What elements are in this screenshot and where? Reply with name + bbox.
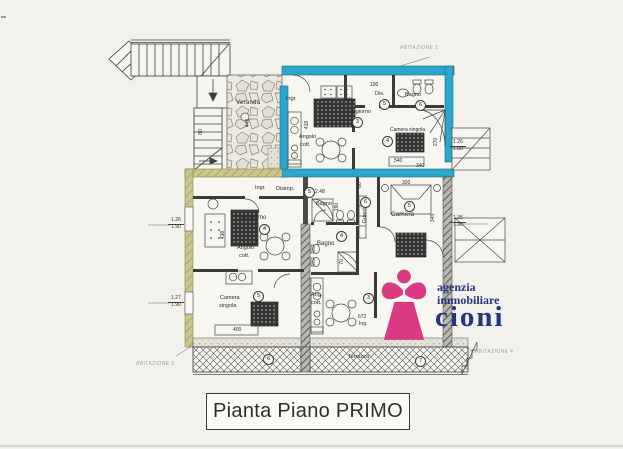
terraces [193, 347, 468, 375]
apt4-bagno-label: Bagno [317, 241, 334, 247]
apt5-bagno-label: Bagno [405, 92, 421, 98]
apt3-bagno-label: Bagno [316, 201, 332, 207]
room-number-badge: 3 [363, 293, 374, 304]
apt3-dim-248: 2.48 [315, 189, 325, 195]
apt5-window-dim: 1.26 1.80 [450, 140, 466, 152]
apt4-dim-320: 320 [402, 180, 410, 186]
apt4-angolo-label2: cott. [311, 300, 321, 306]
apt5-dim-540: 540 [394, 158, 402, 164]
apt3-dim-400: 400 [233, 327, 241, 333]
apt4-camera-label: Camera [391, 211, 414, 218]
apt5-dim-100: 100 [370, 82, 378, 88]
logo-agency-name: cioni [435, 301, 505, 334]
scanned-floor-plan-page: Veranda 448 80 ABITAZIONE 5 Ingr. Soggio… [0, 0, 623, 449]
room-number-badge: 5 [379, 99, 390, 110]
apt5-ingresso-label: Ingr. [286, 96, 297, 102]
apt3-dim-438: 438 [220, 225, 226, 245]
apartment5-label: ABITAZIONE 5 [400, 45, 438, 51]
veranda-stone-floor [227, 75, 282, 170]
apt4-dim-70: 70 [339, 252, 345, 272]
veranda-label: Veranda [236, 100, 260, 106]
logo-figure-icon [378, 268, 430, 342]
apt3-camera-label2: singola [219, 303, 236, 309]
stair-dim: 80 [198, 122, 204, 142]
dim-value: 1.00 [450, 222, 466, 229]
room-number-badge: 3 [352, 117, 363, 128]
room-number-badge: 5 [253, 291, 264, 302]
apt5-angolo-label2: cott. [300, 142, 310, 148]
apt4-terrazza-label: Terrazza [348, 354, 369, 360]
apt5-dim-340: 340 [416, 163, 424, 169]
floor-plan-drawing [0, 0, 623, 449]
room-number-badge: 4 [336, 231, 347, 242]
apt3-soggiorno-label: Soggiorno [239, 215, 266, 221]
apt5-dis-label: Dis. [375, 91, 384, 97]
apt5-camera-label: Camera singola [390, 127, 425, 133]
apt5-dim-418: 418 [304, 115, 310, 135]
room-number-badge: 5 [304, 187, 315, 198]
apartment4-label: ABITAZIONE 4 [475, 349, 513, 355]
agency-logo: agenzia immobiliare cioni [378, 268, 528, 342]
apt4-angolo-label: Ang. [311, 292, 322, 298]
room-number-badge: 6 [415, 100, 426, 111]
apt3-angolo-label2: cott. [239, 253, 249, 259]
apt4-dim-672: 672 [358, 314, 366, 320]
room-number-badge: 6 [360, 197, 371, 208]
apt5-dim-270: 270 [433, 132, 439, 152]
room-number-badge: 4 [382, 136, 393, 147]
apt3-disimpegno-label: Disimp. [276, 186, 294, 192]
dim-value: 1.90 [168, 224, 184, 231]
room-number-badge: 6 [263, 354, 274, 365]
veranda-dim: 448 [245, 113, 251, 133]
apt4-dim-345: 345 [430, 208, 436, 228]
apt3-dim-190: 190 [334, 197, 340, 217]
apt3-window-dim-1: 1.26 1.90 [168, 218, 184, 230]
dim-value: 1.90 [168, 302, 184, 309]
room-number-badge: 4 [259, 224, 270, 235]
plan-title: Pianta Piano PRIMO [213, 400, 403, 423]
apt4-ing-label: Ing. [359, 321, 367, 327]
plan-title-box: Pianta Piano PRIMO [206, 393, 410, 430]
exterior-staircase-top [109, 40, 230, 108]
apartment3-label: ABITAZIONE 3 [136, 361, 174, 367]
apt5-soggiorno-label: Soggiorno [346, 109, 371, 115]
apt3-camera-label: Camera [220, 295, 240, 301]
room-number-badge: 7 [415, 356, 426, 367]
dim-value: 1.80 [450, 146, 466, 153]
apt3-ingresso-label: Ingr. [255, 185, 266, 191]
apt3-angolo-label: Angolo [237, 245, 254, 251]
room-number-badge: 5 [404, 201, 415, 212]
apt4-dim-60: 60 [357, 175, 363, 195]
apt4-window-dim: 1.35 1.00 [450, 216, 466, 228]
apt3-window-dim-2: 1.27 1.90 [168, 296, 184, 308]
